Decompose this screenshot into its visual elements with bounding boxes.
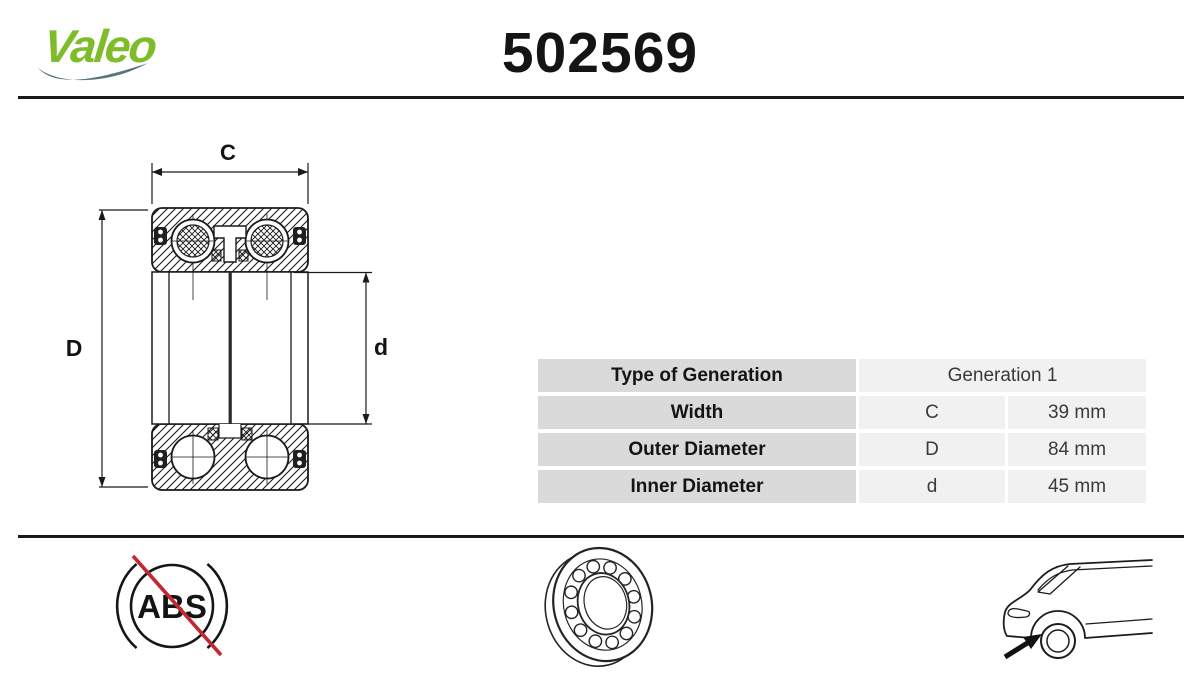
table-row: Outer Diameter D 84 mm <box>538 433 1146 466</box>
table-row: Inner Diameter d 45 mm <box>538 470 1146 503</box>
spec-label: Width <box>538 396 856 429</box>
spec-symbol: d <box>859 470 1005 503</box>
spec-label: Type of Generation <box>538 359 856 392</box>
inner-ring-section <box>152 272 308 424</box>
no-abs-icon: ABS <box>100 545 245 670</box>
bearing-cross-section-diagram: C D d <box>40 118 420 530</box>
page-title: 502569 <box>0 20 1200 86</box>
spec-value: 84 mm <box>1008 433 1146 466</box>
spec-table: Type of Generation Generation 1 Width C … <box>538 359 1146 507</box>
top-divider <box>18 96 1184 99</box>
spec-label: Outer Diameter <box>538 433 856 466</box>
spec-symbol: D <box>859 433 1005 466</box>
bottom-divider <box>18 535 1184 538</box>
spec-symbol: C <box>859 396 1005 429</box>
product-sheet: Valeo 502569 <box>0 0 1200 675</box>
dim-label-width: C <box>220 140 236 165</box>
bearing-icon <box>542 543 662 671</box>
abs-label: ABS <box>137 588 207 625</box>
spec-value: 45 mm <box>1008 470 1146 503</box>
spec-value: 39 mm <box>1008 396 1146 429</box>
dimension-outer <box>99 210 149 487</box>
dimension-width <box>152 163 308 204</box>
spec-label: Inner Diameter <box>538 470 856 503</box>
dim-label-inner: d <box>374 334 388 360</box>
table-row: Width C 39 mm <box>538 396 1146 429</box>
car-rear-wheel-icon <box>993 550 1160 668</box>
table-row: Type of Generation Generation 1 <box>538 359 1146 392</box>
dim-label-outer: D <box>66 335 83 361</box>
spec-value: Generation 1 <box>859 359 1146 392</box>
wheel-pointer-arrow <box>1005 634 1042 657</box>
